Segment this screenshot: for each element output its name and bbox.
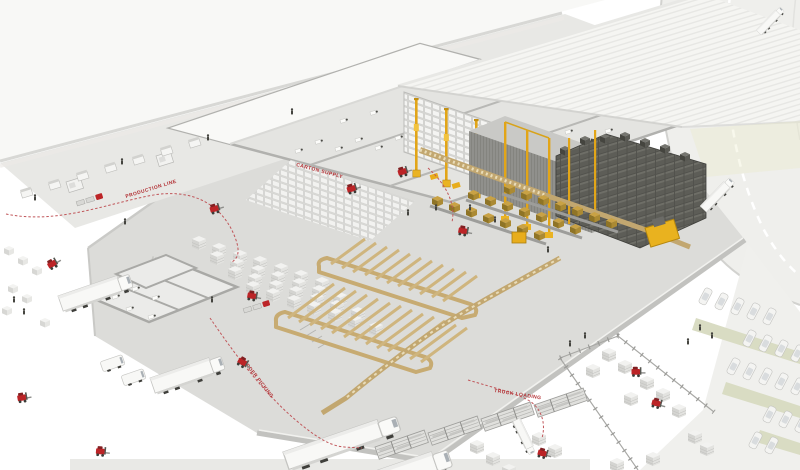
- person: [469, 204, 471, 210]
- pallet-stack: [228, 266, 242, 280]
- person: [547, 246, 549, 252]
- isometric-scene: PRODUCTION LINE CARTON SUPPLY ORDER PICK…: [0, 0, 800, 470]
- person: [569, 340, 571, 346]
- person: [211, 296, 213, 302]
- gantry-machine: [512, 232, 526, 243]
- person: [699, 324, 701, 330]
- pallet-stack: [192, 236, 206, 250]
- person: [121, 158, 123, 164]
- person: [407, 209, 409, 215]
- person: [207, 134, 209, 140]
- person: [584, 332, 586, 338]
- pallet-stack: [287, 295, 301, 309]
- person: [494, 216, 496, 222]
- warehouse-logistics-illustration: PRODUCTION LINE CARTON SUPPLY ORDER PICK…: [0, 0, 800, 470]
- warehouse-side-wall: [690, 121, 800, 177]
- pallet-stack: [470, 440, 484, 454]
- person: [23, 308, 25, 314]
- person: [34, 194, 36, 200]
- pallet-stack: [486, 452, 500, 466]
- person: [687, 338, 689, 344]
- person: [435, 204, 437, 210]
- person: [13, 296, 15, 302]
- person: [291, 108, 293, 114]
- pallet-stack: [266, 288, 280, 302]
- person: [124, 218, 126, 224]
- person: [711, 332, 713, 338]
- pallet-stack: [210, 251, 224, 265]
